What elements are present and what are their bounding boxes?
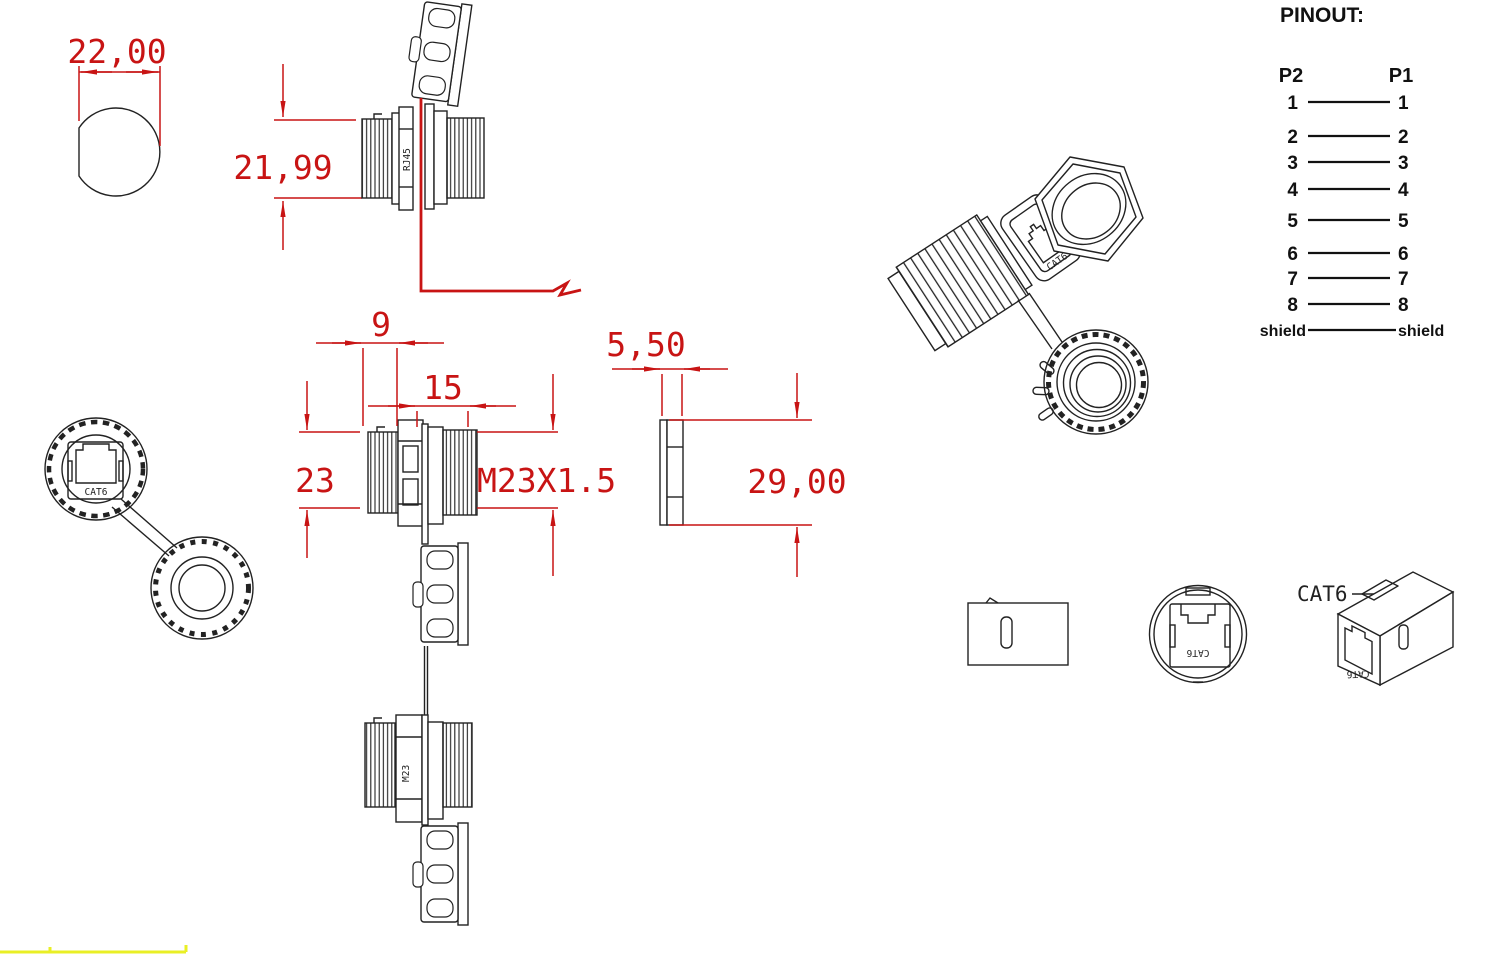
- pin-p1: 5: [1398, 211, 1409, 232]
- dim-thread-spec-group: M23X1.5: [477, 374, 616, 576]
- pinout-row: 2 2: [1287, 127, 1408, 148]
- coupler-callout-label: CAT6: [1297, 582, 1348, 606]
- connector-side-view-bottom: M23: [365, 715, 472, 825]
- pin-p1: shield: [1398, 323, 1444, 340]
- dim-nut-thickness-group: 5,50: [606, 325, 728, 416]
- dim-nut-width-group: 29,00: [669, 373, 847, 577]
- pinout-row: 7 7: [1287, 269, 1408, 290]
- pin-p1: 2: [1398, 127, 1409, 148]
- pin-p1: 7: [1398, 269, 1409, 290]
- highlight-strip: [0, 945, 186, 952]
- rear-thread-section: [447, 118, 484, 198]
- pin-p1: 8: [1398, 295, 1409, 316]
- pinout-row: 5 5: [1287, 211, 1409, 232]
- nut-body: [667, 420, 683, 525]
- coupler-side-view: [968, 598, 1068, 665]
- rj45-opening: [1181, 604, 1215, 623]
- thread-type-marking: M23: [401, 765, 412, 782]
- panel-cutout-view: 22,00: [67, 32, 166, 196]
- dim-cutout-height-group: 21,99: [233, 64, 362, 250]
- dim-front-diameter-group: 23: [295, 381, 360, 558]
- body-section: [434, 111, 447, 204]
- coupler-front-cat6-label: CAT6: [1346, 668, 1370, 680]
- dim-cutout-width: 22,00: [67, 32, 166, 71]
- dim-rear-thread-length-group: 15: [368, 368, 516, 427]
- connector-3d-view: CAT6: [885, 157, 1148, 434]
- latch-slot: [1001, 617, 1012, 648]
- pin-p2: 6: [1287, 244, 1298, 265]
- technical-drawing-canvas: 22,00 21,99 RJ45: [0, 0, 1500, 957]
- rj45-opening: [76, 444, 116, 483]
- pinout-header-p1: P1: [1389, 65, 1413, 87]
- pinout-header-p2: P2: [1279, 65, 1303, 87]
- dust-cap-front: [151, 537, 253, 639]
- front-thread-section: [362, 119, 393, 198]
- hex-collar: [398, 420, 423, 526]
- pin-p2: shield: [1260, 323, 1306, 340]
- pinout-row-shield: shield shield: [1260, 323, 1444, 340]
- lanyard-plate: [422, 424, 428, 544]
- body-section: [428, 722, 443, 819]
- pinout-row: 3 3: [1287, 153, 1408, 174]
- pin-p2: 4: [1287, 180, 1298, 201]
- protection-cap-top: [403, 0, 472, 106]
- front-thread-section: [365, 723, 395, 807]
- connector-side-view-top: RJ45: [362, 0, 581, 295]
- dim-front-diameter: 23: [295, 461, 335, 500]
- pin-p1: 1: [1398, 93, 1409, 114]
- pin-p1: 4: [1398, 180, 1409, 201]
- rear-thread-section: [443, 430, 477, 515]
- jack-type-marking: RJ45: [402, 148, 413, 171]
- lanyard-plate: [422, 715, 428, 825]
- pinout-row: 4 4: [1287, 180, 1409, 201]
- lanyard-strap: [425, 646, 428, 716]
- cutout-circle: [79, 108, 160, 196]
- dim-rear-thread-length: 15: [423, 368, 463, 407]
- dim-nut-thickness: 5,50: [606, 325, 685, 364]
- protection-cap-middle: [413, 543, 468, 645]
- rear-thread-section: [443, 723, 472, 807]
- protection-cap-bottom: [413, 823, 468, 925]
- pin-p2: 5: [1287, 211, 1298, 232]
- dim-front-thread-length-group: 9: [316, 305, 444, 426]
- dim-thread-spec: M23X1.5: [477, 461, 616, 500]
- lanyard-line: [1029, 293, 1062, 342]
- connector-front-view: CAT6: [45, 418, 253, 639]
- coupler-front-view: CAT6: [1150, 586, 1247, 683]
- pin-p2: 2: [1287, 127, 1298, 148]
- connector-side-view-middle: [368, 420, 477, 544]
- pinout-diagram: PINOUT: P2 P1 1 1 2 2 3 3 4 4 5 5 6: [1260, 4, 1444, 340]
- pin-p1: 3: [1398, 153, 1409, 174]
- pin-p2: 8: [1287, 295, 1298, 316]
- round-view-cat6-label: CAT6: [1186, 647, 1209, 658]
- front-view-cat6-label: CAT6: [85, 487, 108, 498]
- lanyard-line: [121, 499, 177, 548]
- dim-front-thread-length: 9: [371, 305, 391, 344]
- pinout-title: PINOUT:: [1280, 4, 1364, 27]
- pinout-row: 8 8: [1287, 295, 1408, 316]
- body-section: [428, 427, 443, 524]
- pin-p2: 3: [1287, 153, 1298, 174]
- pinout-row: 6 6: [1287, 244, 1408, 265]
- pin-p2: 7: [1287, 269, 1298, 290]
- lanyard-line: [112, 507, 169, 556]
- pinout-row: 1 1: [1287, 93, 1409, 114]
- coupler-iso-view: CAT6 CAT6: [1297, 572, 1453, 685]
- nut-rim: [660, 420, 667, 525]
- pin-p2: 1: [1287, 93, 1298, 114]
- pin-p1: 6: [1398, 244, 1409, 265]
- dim-cutout-height: 21,99: [233, 148, 332, 187]
- front-thread-section: [368, 432, 398, 513]
- locknut-side-view: [660, 420, 683, 525]
- flange: [425, 104, 434, 209]
- technical-drawing-page: 22,00 21,99 RJ45: [0, 0, 1500, 957]
- dim-nut-width: 29,00: [747, 462, 846, 501]
- lanyard-line: [1018, 300, 1052, 349]
